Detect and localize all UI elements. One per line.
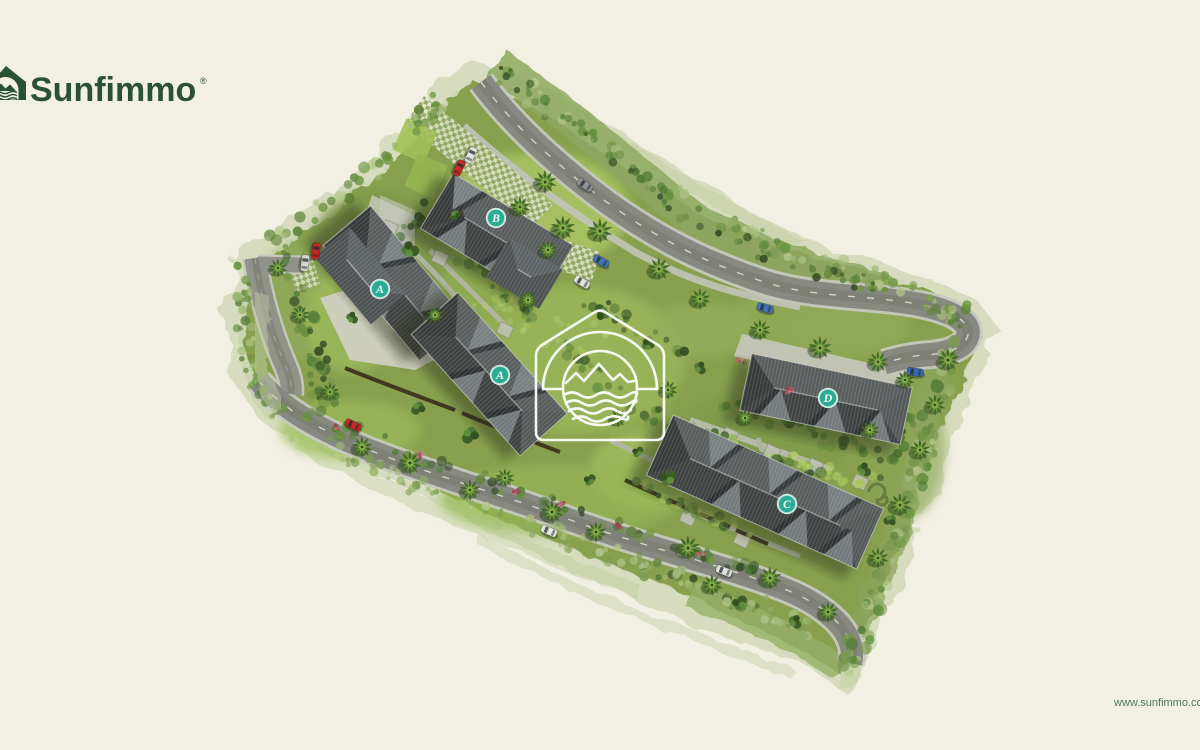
svg-text:www.sunfimmo.com: www.sunfimmo.com — [1113, 697, 1200, 709]
svg-text:®: ® — [200, 76, 207, 86]
svg-text:Sunfimmo: Sunfimmo — [30, 71, 196, 109]
